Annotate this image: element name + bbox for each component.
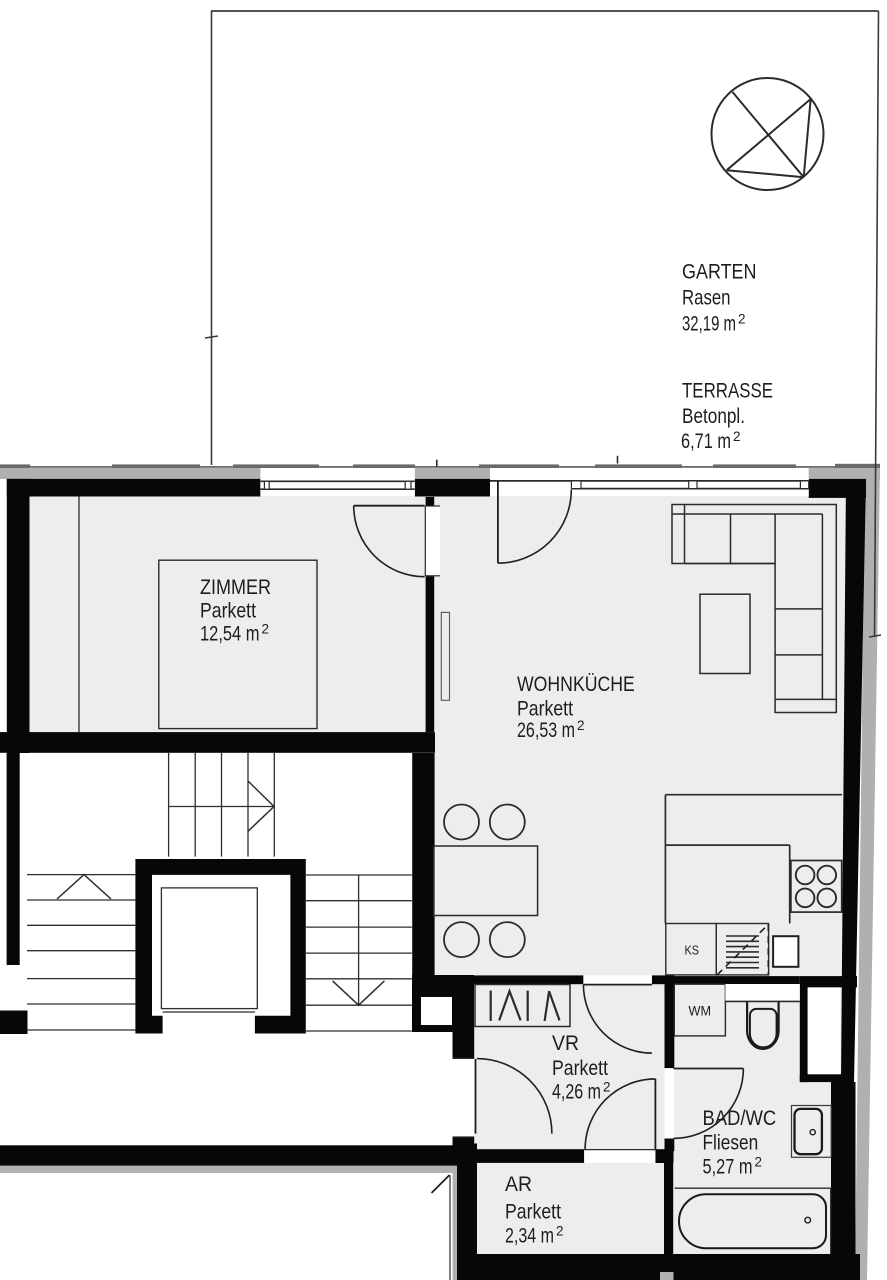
svg-text:Parkett: Parkett [505,1200,561,1224]
svg-text:AR: AR [505,1172,532,1196]
svg-text:VR: VR [552,1031,579,1055]
svg-text:Parkett: Parkett [517,697,573,721]
svg-text:Fliesen: Fliesen [703,1131,759,1155]
svg-text:BAD/WC: BAD/WC [703,1106,777,1130]
svg-text:Parkett: Parkett [552,1056,608,1080]
svg-text:TERRASSE: TERRASSE [682,379,773,403]
svg-text:Rasen: Rasen [682,286,731,310]
svg-text:KS: KS [685,943,700,958]
svg-text:ZIMMER: ZIMMER [200,575,271,599]
svg-text:6,71 m: 6,71 m [681,429,731,453]
svg-text:2: 2 [556,1224,564,1239]
svg-text:26,53 m: 26,53 m [517,718,575,742]
svg-text:12,54 m: 12,54 m [200,622,260,646]
svg-text:2: 2 [733,429,741,444]
svg-text:Betonpl.: Betonpl. [682,404,745,428]
svg-text:32,19 m: 32,19 m [682,312,736,336]
svg-text:Parkett: Parkett [200,599,256,623]
svg-text:2: 2 [603,1080,611,1095]
svg-text:4,26 m: 4,26 m [552,1080,601,1104]
svg-text:2: 2 [577,718,585,733]
svg-text:WM: WM [689,1003,712,1019]
svg-text:2: 2 [738,312,746,327]
svg-text:WOHNKÜCHE: WOHNKÜCHE [517,672,635,696]
svg-text:GARTEN: GARTEN [682,260,757,284]
svg-text:5,27 m: 5,27 m [703,1155,753,1179]
svg-text:2: 2 [755,1155,763,1170]
svg-text:2: 2 [262,622,270,637]
svg-text:2,34 m: 2,34 m [505,1224,554,1248]
